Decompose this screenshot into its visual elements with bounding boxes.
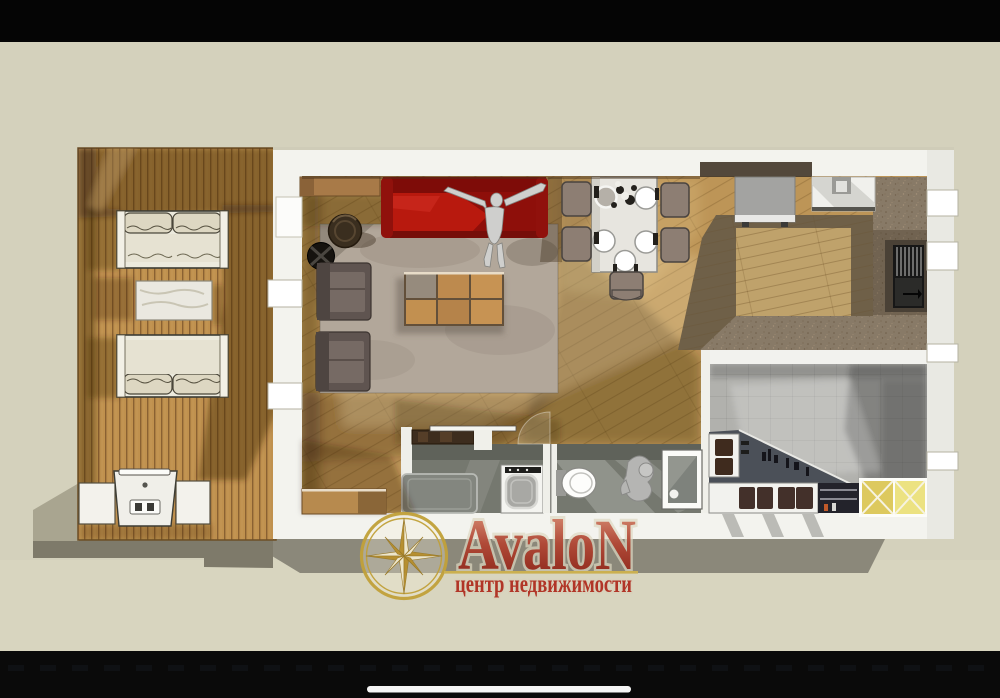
svg-text:центр недвижимости: центр недвижимости	[455, 571, 632, 598]
